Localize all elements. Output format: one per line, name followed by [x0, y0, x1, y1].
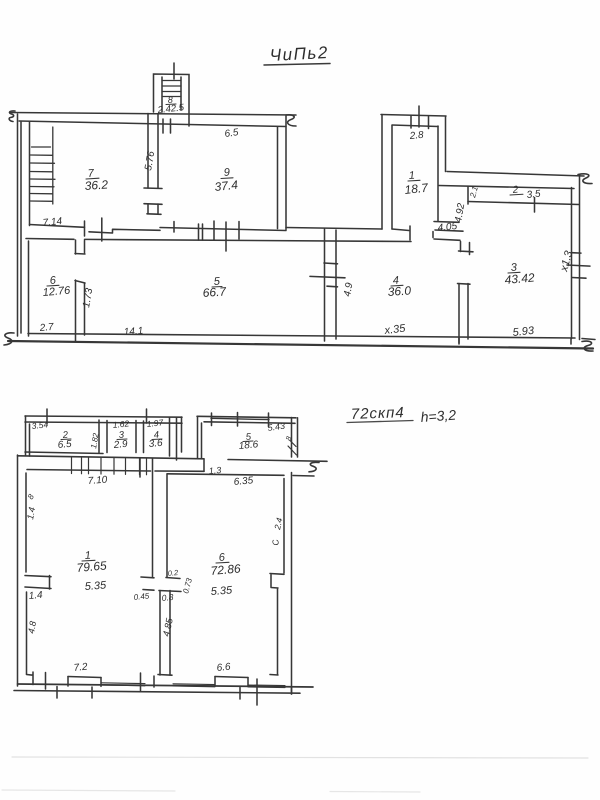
svg-text:4.85: 4.85 — [161, 617, 176, 638]
svg-text:7.2: 7.2 — [73, 662, 88, 674]
svg-text:1.73: 1.73 — [81, 287, 95, 309]
svg-text:3.54: 3.54 — [31, 419, 49, 431]
svg-text:37.4: 37.4 — [214, 178, 239, 194]
svg-text:8: 8 — [26, 492, 36, 501]
svg-text:2.9: 2.9 — [112, 439, 128, 451]
svg-text:6.6: 6.6 — [216, 662, 231, 674]
svg-text:7.14: 7.14 — [42, 216, 63, 229]
svg-text:2.7: 2.7 — [38, 322, 54, 334]
svg-text:ЧиПь2: ЧиПь2 — [269, 43, 329, 65]
svg-text:С: С — [270, 538, 281, 547]
svg-text:1.97: 1.97 — [146, 417, 164, 429]
svg-text:18.7: 18.7 — [404, 180, 430, 197]
svg-text:2.8: 2.8 — [408, 130, 424, 142]
svg-text:5.35: 5.35 — [84, 579, 107, 593]
svg-text:6.35: 6.35 — [233, 475, 254, 488]
svg-text:72скп4: 72скп4 — [351, 404, 405, 423]
svg-text:6.5: 6.5 — [224, 127, 240, 140]
svg-text:1.4: 1.4 — [28, 590, 43, 602]
svg-text:h=3,2: h=3,2 — [420, 407, 457, 425]
svg-text:2.1: 2.1 — [468, 185, 480, 199]
svg-text:2.4: 2.4 — [272, 517, 285, 532]
svg-text:9: 9 — [223, 167, 230, 179]
svg-text:7.10: 7.10 — [87, 475, 108, 487]
svg-text:36.2: 36.2 — [84, 177, 109, 193]
svg-text:1.4: 1.4 — [25, 506, 37, 520]
svg-text:5.76: 5.76 — [143, 150, 157, 172]
svg-text:0.45: 0.45 — [133, 591, 150, 602]
svg-text:4.8: 4.8 — [26, 620, 38, 634]
svg-text:0.8: 0.8 — [161, 592, 174, 603]
svg-text:4.9: 4.9 — [342, 281, 355, 297]
svg-text:5.35: 5.35 — [210, 584, 233, 598]
svg-text:x1.3: x1.3 — [558, 249, 575, 274]
svg-text:12.76: 12.76 — [42, 285, 71, 299]
svg-text:14.1: 14.1 — [123, 326, 143, 338]
svg-text:0.2: 0.2 — [167, 568, 179, 578]
svg-text:0.73: 0.73 — [181, 577, 194, 595]
svg-text:1.62: 1.62 — [112, 418, 130, 430]
svg-text:6.5: 6.5 — [57, 439, 72, 451]
svg-text:72.86: 72.86 — [210, 561, 241, 578]
svg-text:x.35: x.35 — [383, 322, 407, 337]
